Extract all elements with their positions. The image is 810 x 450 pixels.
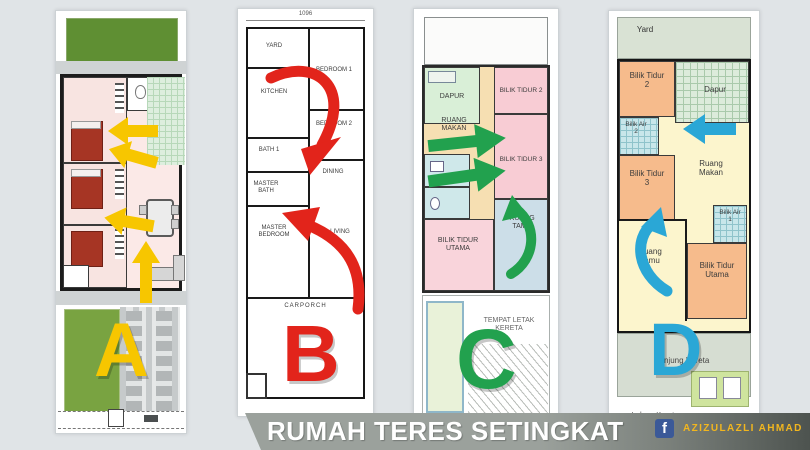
floorplan-c: DAPUR BILIK TIDUR 2 RUANG MAKAN BILIK TI… xyxy=(413,8,559,422)
caption-band: RUMAH TERES SETINGKAT f AZIZULAZLI AHMAD xyxy=(245,413,810,450)
plan-letter-c: C xyxy=(456,317,517,401)
plan-letter-d: D xyxy=(649,313,702,387)
facebook-icon: f xyxy=(655,419,674,438)
floorplan-d: Yard Bilik Tidur 2 Dapur Bilik Air 2 Bil… xyxy=(608,10,760,450)
poster-title: RUMAH TERES SETINGKAT xyxy=(267,413,624,450)
floorplan-a: A xyxy=(55,10,187,434)
plan-letter-a: A xyxy=(94,313,149,389)
floorplan-b: 1096 YARD BEDROOM 1 KITCHEN BEDROOM 2 BA… xyxy=(237,8,374,417)
attribution-name: AZIZULAZLI AHMAD xyxy=(683,423,803,434)
plan-letter-b: B xyxy=(282,314,340,394)
poster: A 1096 YARD BEDROOM 1 KITCHEN BEDROOM 2 … xyxy=(0,0,810,450)
